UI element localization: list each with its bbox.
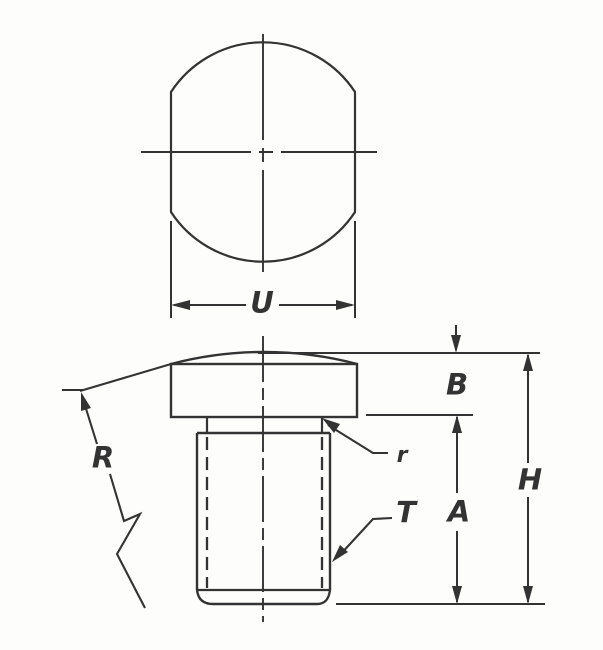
label-head-height: B xyxy=(446,371,468,400)
side-view xyxy=(171,336,357,622)
b-arrowhead-down xyxy=(451,335,461,353)
drawing-canvas: U B R r T A H xyxy=(0,0,603,650)
label-overall-height: H xyxy=(518,466,542,495)
u-arrowhead-right xyxy=(336,300,355,310)
top-view xyxy=(141,34,377,272)
head-outline-side xyxy=(171,364,357,417)
h-arrowhead-down xyxy=(523,586,533,604)
u-arrowhead-left xyxy=(171,300,190,310)
h-arrowhead-up xyxy=(523,353,533,371)
thread-leader xyxy=(332,518,392,562)
fillet-leader xyxy=(322,418,388,453)
bolt-dimension-drawing xyxy=(0,0,603,650)
b-dimension xyxy=(451,325,461,353)
label-fillet-radius: r xyxy=(397,445,408,467)
label-crown-radius: R xyxy=(92,444,114,473)
fillet-leader-line xyxy=(328,425,388,453)
crown-tangent-extension xyxy=(80,364,171,391)
a-arrowhead-up xyxy=(452,415,462,433)
r-radius-arrowhead xyxy=(81,392,91,411)
r-radius-leader-zigzag xyxy=(110,474,145,608)
extension-lines xyxy=(258,353,545,604)
a-arrowhead-down xyxy=(452,586,462,604)
label-thread: T xyxy=(396,499,416,528)
label-shank-length: A xyxy=(448,498,470,527)
r-radius-leader xyxy=(62,364,171,608)
label-head-width: U xyxy=(250,289,274,318)
